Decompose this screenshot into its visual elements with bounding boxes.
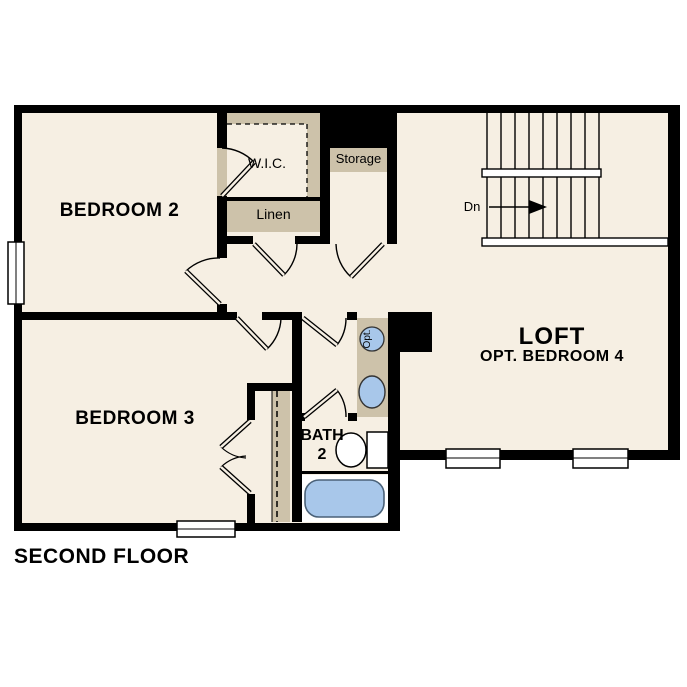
stairs-upper-flight [487, 113, 599, 170]
staircase [482, 113, 668, 246]
bath-inner-door [304, 390, 346, 417]
loft-label-sub: OPT. BEDROOM 4 [434, 349, 670, 366]
loft-label-main: LOFT [434, 324, 670, 349]
bath-hall-door [303, 318, 346, 345]
storage-door [336, 244, 383, 277]
arrow-head-icon [529, 200, 547, 214]
bedroom2-label: BEDROOM 2 [22, 201, 217, 221]
closet-double-door-lower [221, 456, 250, 493]
floor-plan: BEDROOM 2 BEDROOM 3 LOFT OPT. BEDROOM 4 … [0, 0, 687, 687]
sink [359, 376, 385, 408]
down-arrow [489, 200, 547, 214]
stairs-bottom-rail [482, 238, 668, 246]
stairs-down-label: Dn [458, 200, 486, 214]
wic-label: W.I.C. [227, 156, 307, 171]
bedroom3-door [237, 318, 281, 349]
loft-window-right [573, 449, 628, 468]
bedroom2-door [186, 258, 220, 304]
plan-title: SECOND FLOOR [14, 546, 314, 568]
linen-label: Linen [227, 207, 320, 222]
stairs-landing-bar [482, 169, 601, 177]
loft-label: LOFT OPT. BEDROOM 4 [434, 324, 670, 366]
bath2-label: BATH 2 [296, 426, 348, 464]
bedroom2-window [8, 242, 24, 304]
loft-window-left [446, 449, 500, 468]
bathtub [305, 480, 384, 517]
bedroom3-label: BEDROOM 3 [22, 409, 248, 429]
bath-fixtures [305, 327, 388, 517]
bath2-label-text: BATH [296, 426, 348, 445]
linen-door [254, 244, 297, 275]
optional-sink-label: Opt. [363, 328, 381, 350]
bath2-label-number: 2 [296, 445, 348, 464]
bedroom3-window [177, 521, 235, 537]
storage-label: Storage [328, 152, 389, 166]
